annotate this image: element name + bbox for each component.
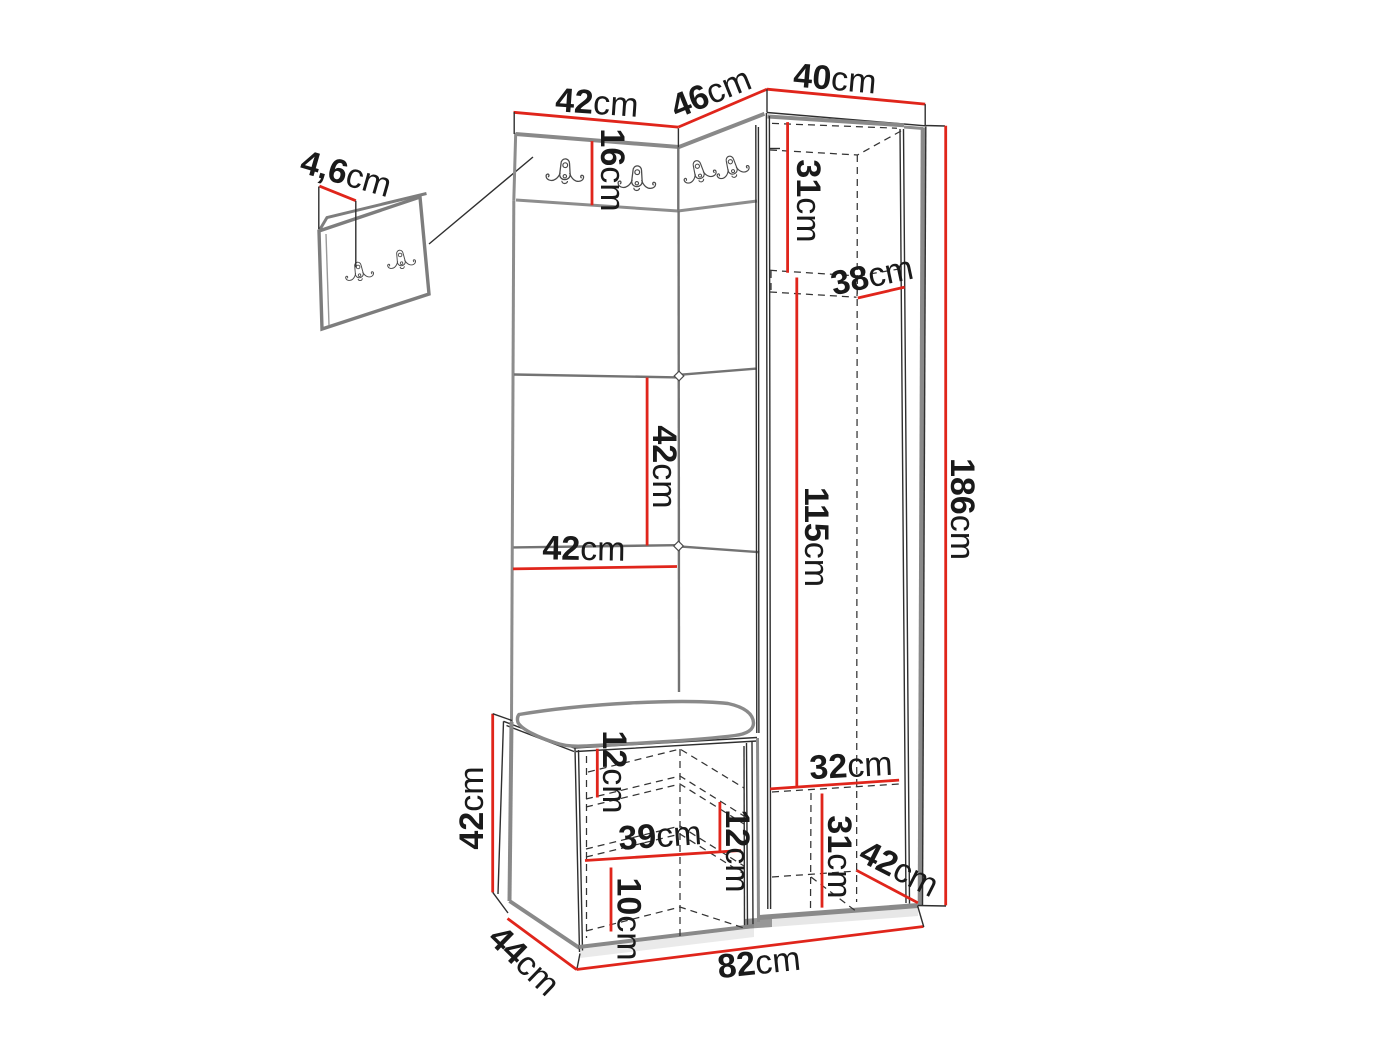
svg-text:10cm: 10cm <box>610 877 648 960</box>
svg-text:31cm: 31cm <box>789 159 827 242</box>
svg-text:12cm: 12cm <box>718 809 756 892</box>
svg-text:115cm: 115cm <box>797 487 835 587</box>
svg-text:39cm: 39cm <box>617 814 703 858</box>
svg-text:16cm: 16cm <box>593 128 631 211</box>
svg-text:42cm: 42cm <box>645 425 683 508</box>
svg-text:40cm: 40cm <box>792 56 878 101</box>
svg-text:31cm: 31cm <box>820 815 858 898</box>
svg-text:42cm: 42cm <box>554 81 640 125</box>
svg-text:42cm: 42cm <box>453 766 491 849</box>
svg-text:186cm: 186cm <box>943 458 981 560</box>
svg-text:42cm: 42cm <box>542 529 626 568</box>
svg-text:12cm: 12cm <box>595 730 633 813</box>
svg-text:32cm: 32cm <box>808 745 893 787</box>
